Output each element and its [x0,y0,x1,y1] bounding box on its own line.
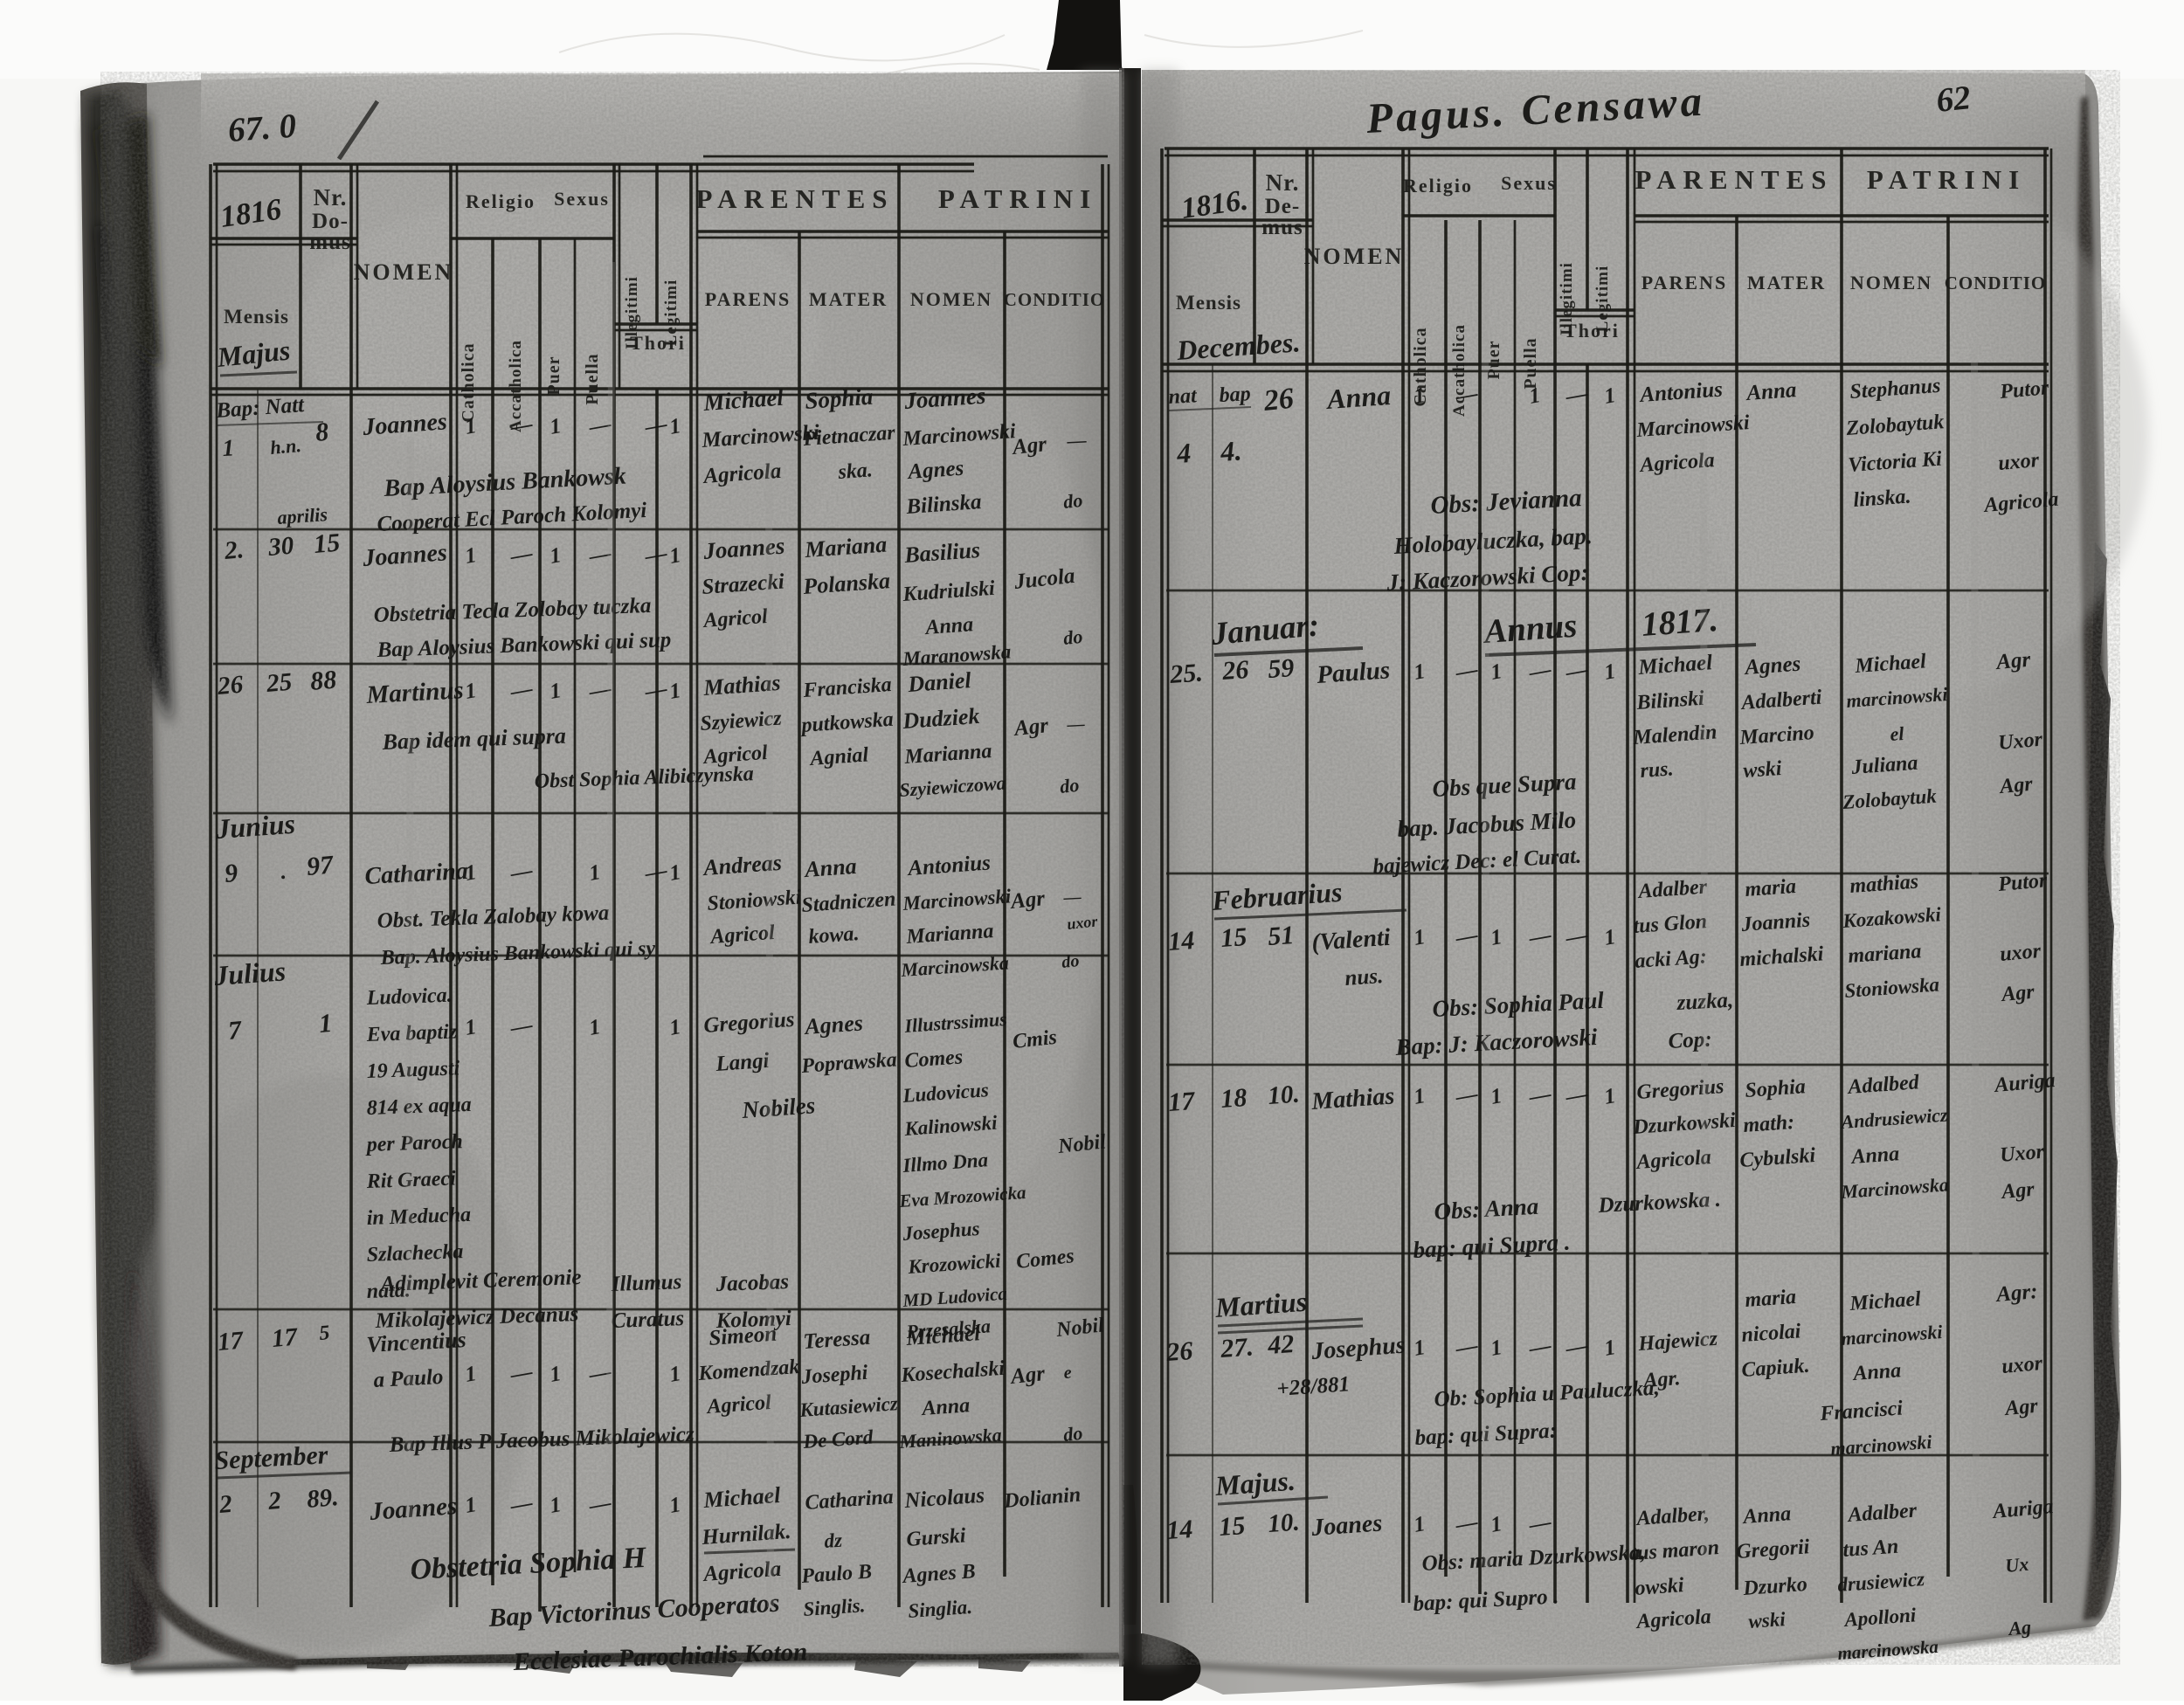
svg-text:Legitimi: Legitimi [1593,266,1612,333]
svg-text:Illegitimi: Illegitimi [1558,262,1576,335]
svg-text:owski: owski [1635,1574,1685,1600]
svg-text:814 ex aqua: 814 ex aqua [366,1094,472,1120]
svg-text:uxor: uxor [1997,449,2040,475]
svg-text:mus: mus [309,231,350,254]
svg-text:Uxor: Uxor [1999,1141,2045,1167]
svg-text:19 Augusti: 19 Augusti [366,1057,460,1083]
svg-text:h.n.: h.n. [269,434,302,459]
svg-text:Bilinski: Bilinski [1635,687,1705,714]
svg-text:Agnes: Agnes [802,1010,863,1039]
svg-text:—: — [1526,1334,1552,1361]
svg-text:—: — [642,859,668,886]
svg-text:17: 17 [1167,1087,1196,1117]
svg-text:Agr: Agr [1012,714,1050,741]
svg-text:Vincentius: Vincentius [366,1327,467,1357]
svg-text:linska.: linska. [1853,485,1912,512]
svg-text:wski: wski [1743,757,1783,783]
svg-text:Paulus: Paulus [1315,656,1391,689]
svg-text:—: — [1453,1510,1479,1537]
svg-text:Putor: Putor [1998,376,2050,404]
svg-text:Puella: Puella [1521,337,1540,389]
svg-text:—: — [1062,887,1082,908]
svg-text:—: — [1563,1334,1589,1361]
svg-text:Daniel: Daniel [906,667,972,697]
svg-text:Agr: Agr [1008,1362,1047,1389]
svg-text:Jacobas: Jacobas [715,1270,789,1296]
svg-text:Agnes: Agnes [906,457,965,485]
svg-text:Singlia.: Singlia. [908,1596,973,1622]
svg-text:Anna: Anna [1741,1502,1792,1529]
svg-text:aprilis: aprilis [277,503,328,528]
svg-text:do: do [1059,774,1080,797]
svg-text:97: 97 [306,850,335,881]
svg-text:—: — [1066,429,1087,452]
svg-text:Ux: Ux [2004,1553,2029,1577]
svg-text:tus An: tus An [1842,1536,1899,1562]
svg-text:Nr.: Nr. [1266,169,1300,196]
svg-text:Anna: Anna [1324,379,1392,415]
svg-text:bap: bap [1219,383,1251,407]
svg-text:Anna: Anna [1745,378,1798,405]
svg-text:math:: math: [1743,1111,1795,1137]
svg-text:Curatus: Curatus [611,1307,684,1333]
svg-text:17: 17 [271,1322,300,1353]
svg-text:NOMEN: NOMEN [910,288,992,310]
svg-text:e: e [1063,1363,1072,1383]
svg-text:Nr.: Nr. [314,184,348,211]
svg-text:Catharina: Catharina [364,858,469,890]
svg-text:—: — [1453,658,1479,685]
svg-text:15: 15 [1218,1511,1246,1542]
svg-text:NOMEN: NOMEN [354,259,454,285]
svg-text:rus.: rus. [1640,757,1675,783]
svg-text:—: — [508,1360,534,1387]
svg-text:Martinus: Martinus [365,676,465,709]
svg-text:10.: 10. [1267,1508,1300,1538]
svg-text:Nobiles: Nobiles [740,1092,816,1123]
svg-text:1: 1 [222,434,235,461]
svg-text:89.: 89. [306,1483,340,1514]
svg-text:18: 18 [1220,1083,1248,1114]
svg-text:nus.: nus. [1344,964,1385,991]
svg-text:—: — [642,677,668,704]
svg-text:wski: wski [1748,1608,1787,1633]
svg-text:Religio: Religio [466,190,536,212]
svg-text:MATER: MATER [809,288,888,310]
svg-text:8: 8 [314,418,330,447]
svg-text:—: — [1526,923,1552,950]
svg-text:14: 14 [1165,1515,1193,1545]
svg-text:—: — [1563,658,1589,685]
svg-text:Sexus: Sexus [1501,172,1557,194]
svg-text:—: — [1563,382,1589,409]
svg-text:Josephi: Josephi [800,1362,869,1389]
svg-text:el: el [1890,722,1905,745]
svg-text:4.: 4. [1219,434,1242,467]
svg-text:51: 51 [1267,921,1295,951]
svg-text:—: — [1526,1510,1552,1537]
svg-text:—: — [508,412,534,439]
svg-text:Martius: Martius [1213,1286,1308,1323]
svg-text:Joannis: Joannis [1740,909,1811,936]
svg-text:mus: mus [1261,216,1303,239]
svg-text:do: do [1061,951,1080,972]
svg-text:Agricol: Agricol [708,922,776,949]
svg-text:Langi: Langi [715,1049,771,1076]
svg-text:MATER: MATER [1747,272,1826,293]
svg-text:Anna: Anna [920,1394,971,1420]
svg-text:Agnes: Agnes [1743,652,1802,680]
svg-text:Julius: Julius [212,955,287,991]
svg-text:9: 9 [224,859,239,888]
svg-text:Sexus: Sexus [554,188,610,210]
svg-text:25: 25 [265,668,294,698]
svg-text:Mensis: Mensis [224,306,289,328]
svg-text:26: 26 [1261,383,1296,418]
svg-text:Dzurko: Dzurko [1742,1573,1808,1600]
svg-text:PARENTES: PARENTES [695,183,894,214]
svg-text:Agricol: Agricol [702,605,769,632]
svg-text:Joanes: Joanes [1310,1509,1383,1542]
svg-text:PARENTES: PARENTES [1635,164,1833,195]
svg-text:(Valenti: (Valenti [1310,924,1391,956]
svg-text:De-: De- [1265,195,1300,218]
svg-text:—: — [586,1491,612,1518]
svg-text:—: — [1453,1082,1479,1109]
svg-text:Cmis: Cmis [1012,1026,1058,1053]
svg-text:5: 5 [318,1322,330,1345]
svg-text:Ag: Ag [2006,1616,2032,1639]
svg-text:Juliana: Juliana [1850,752,1919,779]
svg-text:17: 17 [217,1326,245,1356]
svg-text:Szlachecka: Szlachecka [366,1240,464,1267]
svg-text:—: — [508,542,534,569]
svg-text:Sophia: Sophia [804,383,874,414]
svg-text:—: — [642,412,668,439]
svg-text:maria: maria [1745,875,1797,901]
svg-text:—: — [1526,1082,1552,1109]
svg-text:—: — [1563,923,1589,950]
svg-text:1817.: 1817. [1641,601,1720,644]
svg-text:Mensis: Mensis [1176,292,1241,314]
svg-text:Capiuk.: Capiuk. [1741,1355,1811,1382]
svg-text:uxor: uxor [1999,940,2042,966]
svg-text:Basilius: Basilius [902,537,981,568]
svg-text:ska.: ska. [837,459,874,484]
svg-text:Agr: Agr [1994,648,2031,674]
svg-text:—: — [1453,923,1479,950]
svg-text:nicolai: nicolai [1741,1320,1802,1347]
svg-text:PATRINI: PATRINI [1867,164,2026,195]
svg-text:per Paroch: per Paroch [364,1130,463,1156]
svg-text:Putor: Putor [1996,869,2049,896]
svg-text:88: 88 [309,665,338,695]
svg-text:uxor: uxor [2001,1352,2043,1378]
svg-text:14: 14 [1167,926,1195,956]
svg-text:15: 15 [1220,922,1248,953]
svg-text:Annus: Annus [1481,607,1579,652]
svg-text:PATRINI: PATRINI [938,183,1097,214]
svg-text:Anna: Anna [802,853,857,882]
svg-text:Uxor: Uxor [1997,728,2043,755]
svg-text:Anna: Anna [923,613,974,639]
svg-text:maria: maria [1745,1286,1797,1312]
svg-text:in Meducha: in Meducha [366,1204,471,1230]
svg-text:26: 26 [216,671,245,701]
svg-text:25.: 25. [1168,658,1204,689]
svg-text:—: — [508,859,534,886]
svg-text:10.: 10. [1267,1080,1300,1110]
svg-text:2: 2 [218,1490,233,1519]
svg-text:do: do [1062,625,1083,649]
svg-text:Gurski: Gurski [906,1524,967,1551]
svg-text:Agr: Agr [1997,773,2034,798]
svg-text:Puella: Puella [583,353,602,404]
svg-text:30: 30 [266,532,295,562]
svg-text:PARENS: PARENS [1641,272,1727,293]
svg-text:67. 0: 67. 0 [227,107,298,149]
svg-text:26: 26 [1165,1336,1193,1367]
svg-text:—: — [508,1013,534,1040]
svg-text:—: — [642,542,668,569]
svg-text:Comes: Comes [904,1046,964,1073]
svg-text:Agr: Agr [1999,981,2035,1006]
svg-text:Catholica: Catholica [459,342,478,422]
svg-text:Majus.: Majus. [1213,1465,1296,1501]
svg-text:Singlis.: Singlis. [803,1594,867,1620]
svg-text:kowa.: kowa. [808,922,860,949]
svg-text:Agr: Agr [1010,432,1048,459]
svg-text:Teressa: Teressa [803,1326,872,1354]
svg-text:Legitimi: Legitimi [662,280,681,347]
svg-text:—: — [508,1491,534,1518]
svg-text:Anna: Anna [1849,1142,1900,1169]
svg-text:Sophia: Sophia [1745,1075,1807,1102]
svg-text:Agnial: Agnial [808,743,870,770]
svg-text:—: — [1526,658,1552,685]
svg-text:—: — [508,677,534,704]
svg-text:27.: 27. [1219,1332,1254,1363]
svg-text:do: do [1062,1422,1083,1446]
svg-text:CONDITIO: CONDITIO [1945,273,2047,293]
svg-text:Agr:: Agr: [1994,1280,2038,1307]
svg-text:42: 42 [1266,1329,1295,1360]
svg-text:nat: nat [1168,384,1199,409]
svg-text:Anna: Anna [1851,1359,1902,1385]
svg-text:do: do [1062,489,1083,513]
svg-text:—: — [1066,714,1085,735]
svg-text:4: 4 [1175,437,1192,469]
svg-text:PARENS: PARENS [705,288,791,310]
svg-text:—: — [1453,382,1479,409]
svg-text:2: 2 [266,1487,282,1515]
svg-text:uxor: uxor [1066,912,1099,933]
svg-text:26: 26 [1220,655,1249,686]
svg-text:—: — [1453,1334,1479,1361]
svg-text:Religio: Religio [1403,175,1473,197]
svg-text:59: 59 [1267,653,1295,684]
svg-text:Junius: Junius [214,808,296,845]
svg-text:Agr: Agr [1008,887,1047,914]
svg-text:Dudziek: Dudziek [901,703,980,734]
svg-text:1: 1 [318,1009,334,1039]
svg-text:Agr: Agr [1999,1178,2035,1204]
svg-text:dz: dz [824,1529,843,1552]
svg-text:CONDITIO: CONDITIO [1004,289,1106,310]
svg-text:Illumus: Illumus [610,1270,682,1296]
svg-text:mathias: mathias [1849,871,1919,898]
svg-text:62: 62 [1934,79,1972,120]
svg-text:September: September [214,1440,329,1475]
svg-text:Do-: Do- [312,210,349,233]
svg-text:—: — [1563,1082,1589,1109]
svg-text:NOMEN: NOMEN [1304,244,1405,269]
svg-text:NOMEN: NOMEN [1850,272,1932,293]
svg-text:Agr: Agr [2002,1395,2039,1420]
svg-text:2.: 2. [223,535,245,565]
svg-text:15: 15 [313,528,342,558]
svg-text:Puer: Puer [544,355,563,395]
svg-text:Illegitimi: Illegitimi [623,276,641,349]
svg-text:Agricol: Agricol [705,1391,772,1419]
